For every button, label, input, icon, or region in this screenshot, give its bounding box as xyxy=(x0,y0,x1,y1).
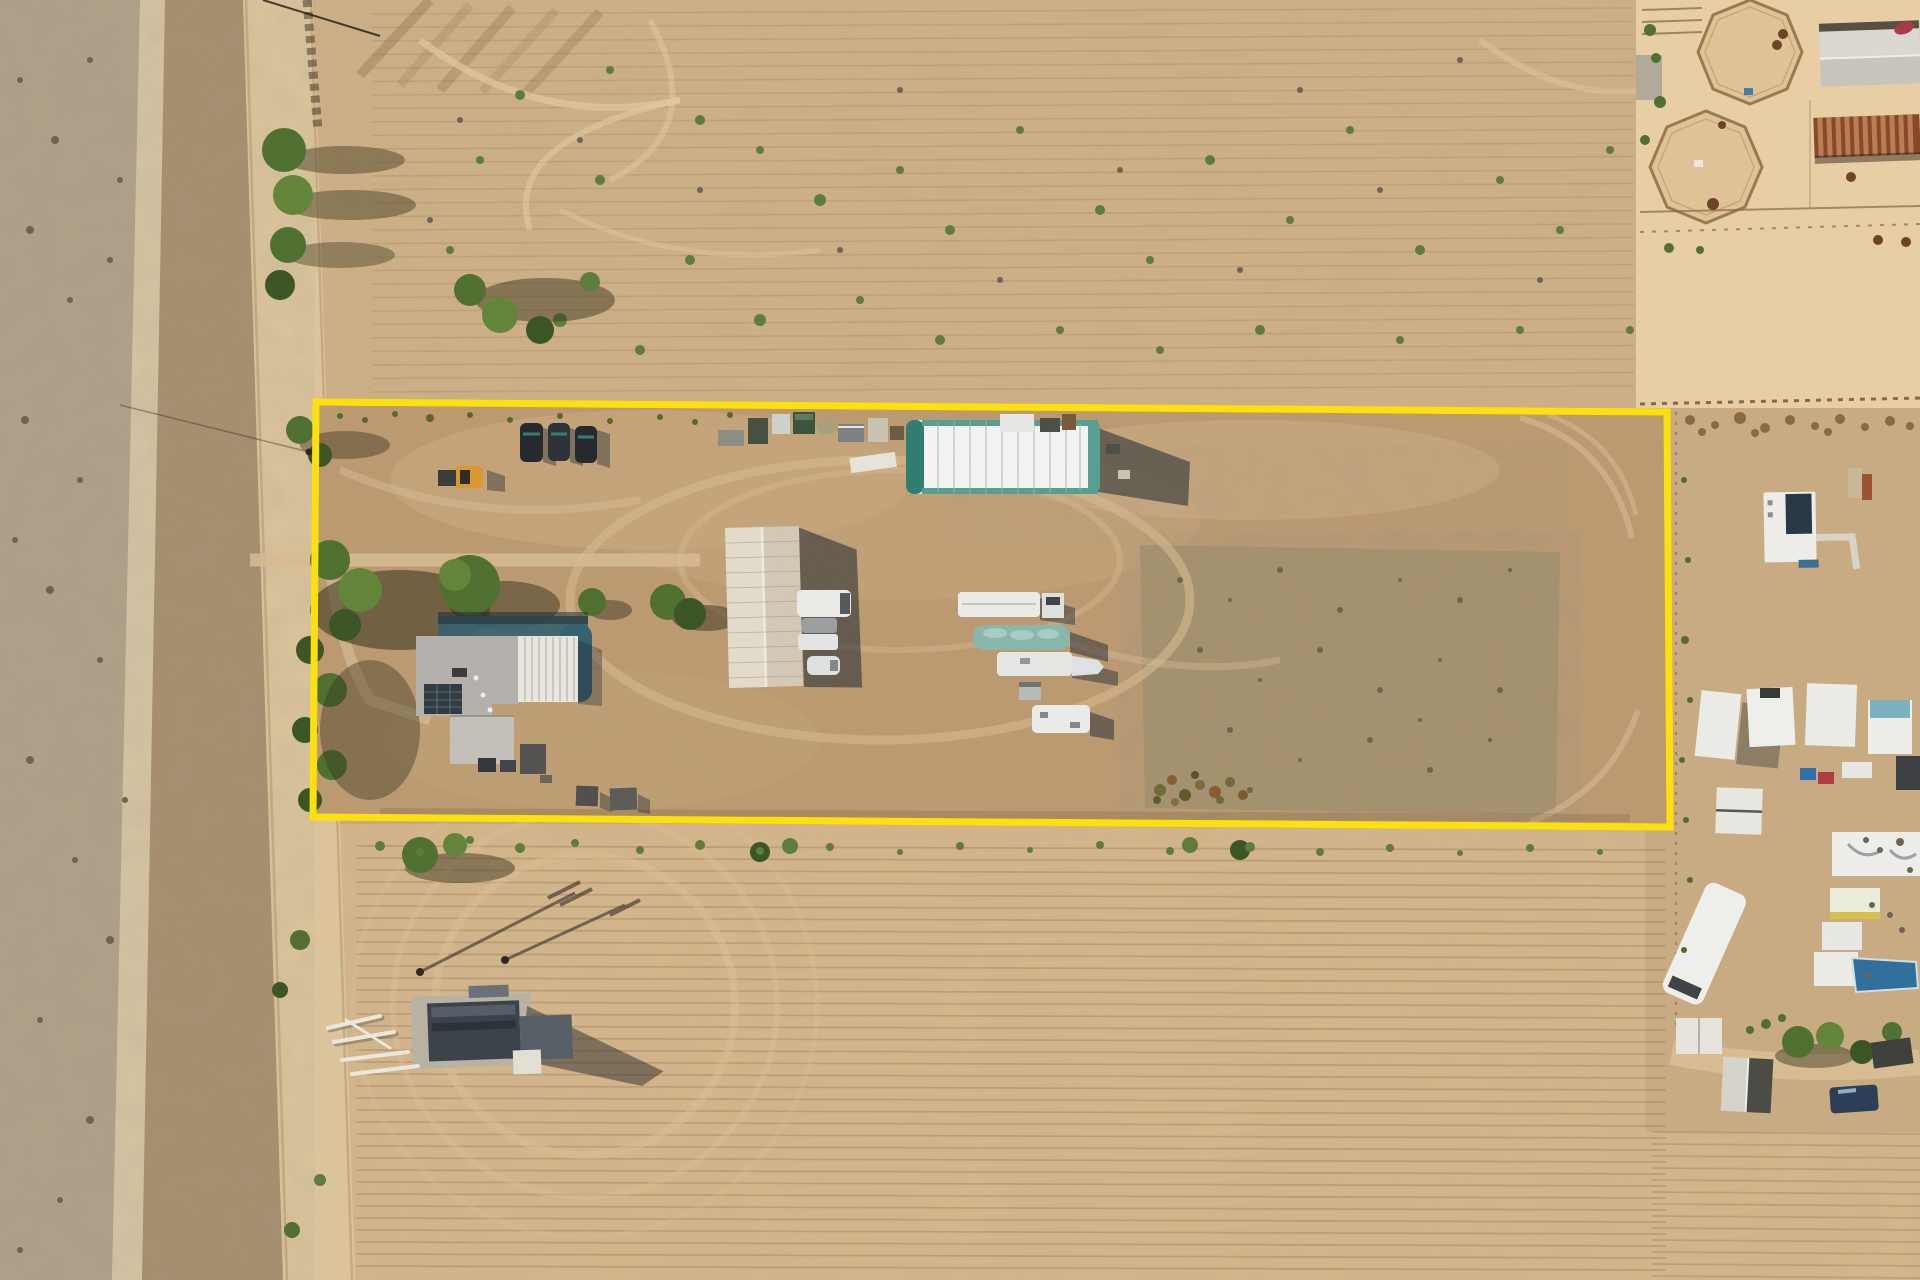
aerial-photo-scene xyxy=(0,0,1920,1280)
grain-overlay xyxy=(0,0,1920,1280)
aerial-photo xyxy=(0,0,1920,1280)
